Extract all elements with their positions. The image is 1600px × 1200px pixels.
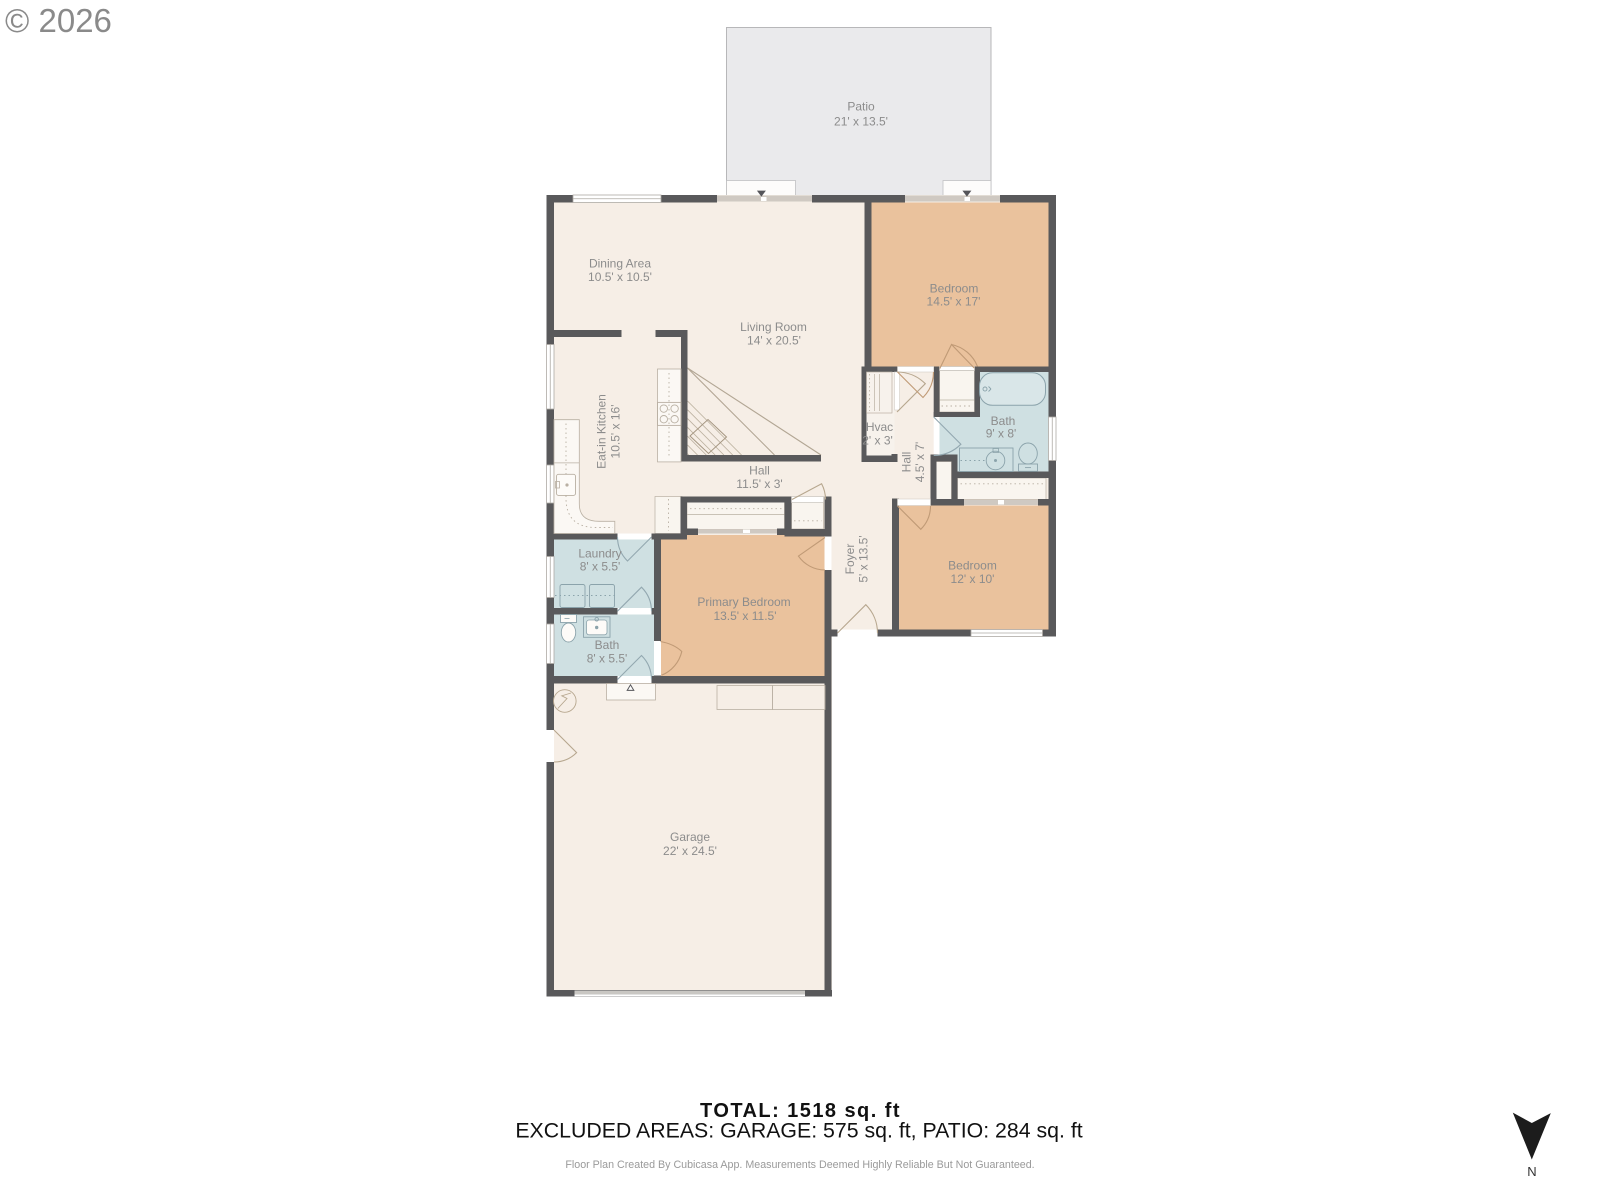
svg-text:11.5' x 3': 11.5' x 3': [736, 477, 782, 491]
svg-text:Floor Plan Created By Cubicasa: Floor Plan Created By Cubicasa App. Meas…: [565, 1159, 1034, 1171]
svg-text:8' x 5.5': 8' x 5.5': [587, 652, 628, 666]
svg-text:10.5' x 16': 10.5' x 16': [609, 405, 623, 459]
svg-text:N: N: [1527, 1164, 1536, 1179]
svg-text:Dining Area: Dining Area: [589, 257, 651, 271]
svg-text:Eat-in Kitchen: Eat-in Kitchen: [595, 394, 609, 469]
svg-text:Hall: Hall: [900, 452, 914, 473]
svg-text:13.5' x 11.5': 13.5' x 11.5': [713, 609, 776, 623]
svg-text:14.5' x 17': 14.5' x 17': [927, 295, 981, 309]
svg-text:Living Room: Living Room: [740, 320, 807, 334]
svg-text:5' x 13.5': 5' x 13.5': [857, 535, 871, 582]
svg-text:Foyer: Foyer: [843, 544, 857, 575]
svg-text:12' x 10': 12' x 10': [951, 572, 995, 586]
svg-text:22' x 24.5': 22' x 24.5': [663, 844, 717, 858]
svg-text:Garage: Garage: [670, 830, 710, 844]
svg-text:© 2026: © 2026: [5, 2, 112, 39]
svg-text:Primary Bedroom: Primary Bedroom: [697, 595, 790, 609]
svg-text:Bedroom: Bedroom: [948, 559, 997, 573]
svg-text:Hvac: Hvac: [866, 420, 893, 434]
svg-text:8' x 5.5': 8' x 5.5': [580, 560, 621, 574]
svg-text:10.5' x 10.5': 10.5' x 10.5': [588, 270, 652, 284]
svg-text:Patio: Patio: [847, 100, 875, 114]
svg-text:9' x 8': 9' x 8': [986, 427, 1017, 441]
svg-text:14' x 20.5': 14' x 20.5': [747, 334, 801, 348]
svg-text:EXCLUDED AREAS: GARAGE: 575 sq: EXCLUDED AREAS: GARAGE: 575 sq. ft, PATI…: [515, 1119, 1082, 1143]
svg-text:2' x 3': 2' x 3': [862, 434, 893, 448]
svg-text:21' x 13.5': 21' x 13.5': [834, 115, 888, 129]
svg-text:Bedroom: Bedroom: [930, 282, 979, 296]
svg-text:Hall: Hall: [749, 464, 770, 478]
svg-text:Bath: Bath: [595, 638, 620, 652]
svg-text:Laundry: Laundry: [578, 547, 621, 561]
svg-text:4.5' x 7': 4.5' x 7': [913, 442, 927, 483]
